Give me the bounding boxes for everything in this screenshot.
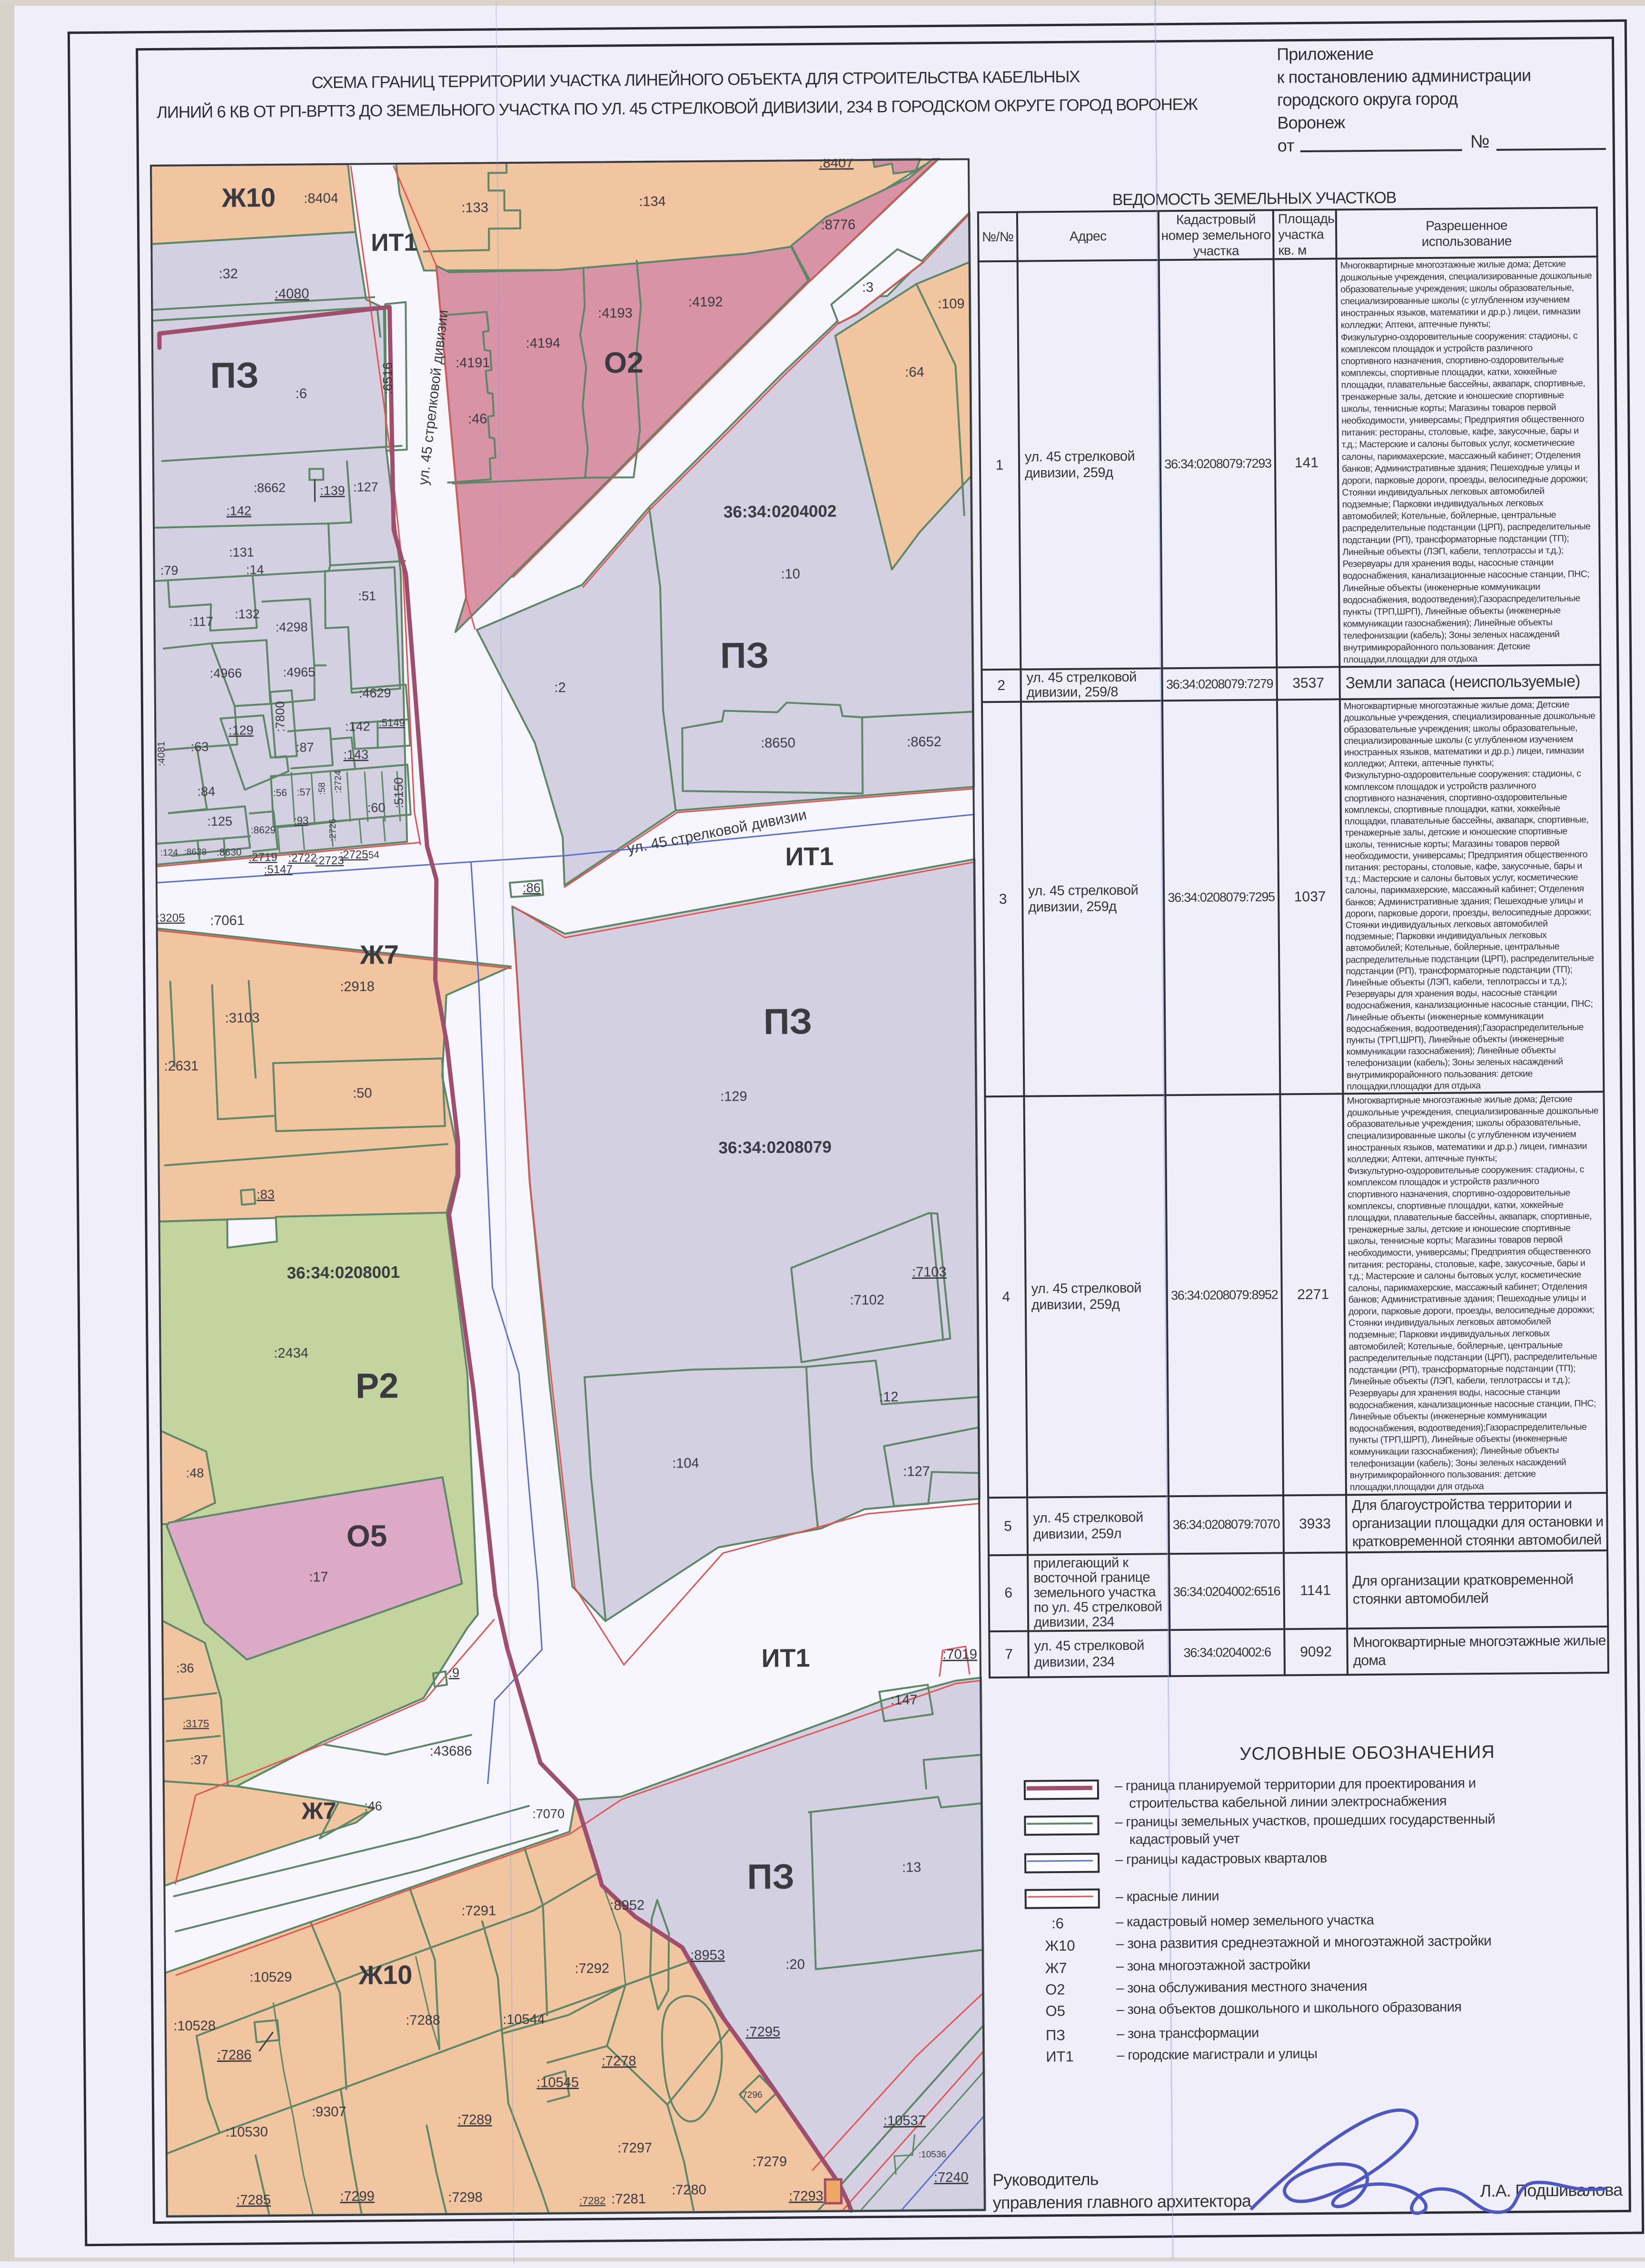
svg-text::117: :117 <box>189 614 213 629</box>
svg-text::2434: :2434 <box>274 1345 308 1361</box>
svg-text::57: :57 <box>297 787 311 798</box>
svg-text::10536: :10536 <box>919 2150 946 2160</box>
svg-text::8407: :8407 <box>819 158 854 171</box>
svg-text:36:34:0208001: 36:34:0208001 <box>287 1263 400 1282</box>
svg-text::4965: :4965 <box>283 665 315 680</box>
svg-text::7286: :7286 <box>217 2047 252 2063</box>
svg-text::109: :109 <box>938 296 965 312</box>
svg-text::6: :6 <box>296 386 307 401</box>
svg-text::46: :46 <box>468 411 487 426</box>
svg-text::3205: :3205 <box>156 912 185 925</box>
svg-text::79: :79 <box>160 563 178 578</box>
svg-text::7292: :7292 <box>575 1961 609 1977</box>
svg-text::10537: :10537 <box>883 2113 926 2129</box>
svg-text::125: :125 <box>207 814 232 828</box>
svg-text::7800: :7800 <box>273 701 287 732</box>
svg-text::8652: :8652 <box>907 734 941 750</box>
svg-text::2: :2 <box>554 680 565 695</box>
svg-text::9307: :9307 <box>312 2104 347 2120</box>
svg-text::8662: :8662 <box>253 481 286 495</box>
svg-text::10544: :10544 <box>503 2012 545 2028</box>
svg-text::4081: :4081 <box>156 741 167 767</box>
svg-text::5147: :5147 <box>264 863 293 876</box>
svg-text::7103: :7103 <box>912 1264 947 1280</box>
svg-text::142: :142 <box>345 719 370 733</box>
svg-text::58: :58 <box>317 782 327 795</box>
svg-text::8630: :8630 <box>217 847 242 858</box>
svg-text::8776: :8776 <box>821 217 856 233</box>
svg-text:Ж7: Ж7 <box>359 939 399 970</box>
svg-text::10530: :10530 <box>226 2124 268 2140</box>
svg-text::143: :143 <box>343 747 368 761</box>
svg-text:ИТ1: ИТ1 <box>371 229 418 257</box>
svg-text::7285: :7285 <box>236 2192 271 2208</box>
svg-text::147: :147 <box>891 1692 918 1707</box>
svg-text::84: :84 <box>197 784 215 799</box>
svg-text:О2: О2 <box>604 346 644 380</box>
svg-text::3175: :3175 <box>183 1717 209 1729</box>
svg-text::131: :131 <box>229 545 254 559</box>
svg-text::7281: :7281 <box>611 2191 646 2207</box>
svg-text::93: :93 <box>294 814 308 826</box>
svg-text::7288: :7288 <box>406 2012 440 2028</box>
svg-text::127: :127 <box>903 1464 930 1479</box>
svg-text::32: :32 <box>219 266 238 282</box>
svg-text:ИТ1: ИТ1 <box>762 1644 810 1673</box>
svg-text::8650: :8650 <box>761 735 795 751</box>
svg-text:ПЗ: ПЗ <box>747 1857 794 1897</box>
svg-text::48: :48 <box>186 1466 204 1480</box>
svg-text::13: :13 <box>902 1860 922 1875</box>
svg-text::7278: :7278 <box>602 2053 636 2069</box>
svg-text::7102: :7102 <box>850 1292 884 1308</box>
svg-text::8404: :8404 <box>304 191 338 207</box>
svg-text::50: :50 <box>353 1085 372 1101</box>
svg-text::4191: :4191 <box>456 355 490 371</box>
svg-text::10529: :10529 <box>249 1970 292 1985</box>
svg-text::4193: :4193 <box>598 306 633 321</box>
svg-text::8629: :8629 <box>251 825 276 836</box>
svg-text::46: :46 <box>364 1799 382 1813</box>
svg-text::37: :37 <box>190 1753 208 1767</box>
svg-text::10545: :10545 <box>536 2075 579 2091</box>
svg-text::3103: :3103 <box>225 1010 260 1026</box>
svg-text::6516: :6516 <box>380 362 395 394</box>
svg-text::4629: :4629 <box>359 686 391 700</box>
svg-text::10528: :10528 <box>173 2018 216 2034</box>
svg-text::5149: :5149 <box>379 717 405 729</box>
svg-text::104: :104 <box>672 1456 699 1471</box>
svg-text::3: :3 <box>862 280 873 295</box>
svg-text::4080: :4080 <box>275 286 309 302</box>
svg-text:ПЗ: ПЗ <box>210 355 259 396</box>
svg-text::7299: :7299 <box>340 2189 375 2204</box>
svg-text::127: :127 <box>353 480 378 494</box>
svg-text::8952: :8952 <box>610 1898 644 1913</box>
svg-text::7070: :7070 <box>532 1806 565 1821</box>
svg-text::129: :129 <box>720 1089 747 1104</box>
svg-text::87: :87 <box>296 740 314 754</box>
svg-text::2918: :2918 <box>340 979 375 995</box>
svg-text::4298: :4298 <box>276 620 308 634</box>
svg-text::60: :60 <box>367 800 386 815</box>
svg-text::4966: :4966 <box>210 666 242 681</box>
svg-text::129: :129 <box>228 723 254 737</box>
svg-text::64: :64 <box>905 365 924 380</box>
svg-text::51: :51 <box>358 589 376 603</box>
svg-text::12: :12 <box>879 1390 899 1405</box>
svg-text::7280: :7280 <box>672 2182 706 2198</box>
svg-text::83: :83 <box>257 1187 275 1202</box>
svg-text::2725: :2725 <box>339 848 368 861</box>
svg-text::8628: :8628 <box>184 847 207 857</box>
svg-text::133: :133 <box>461 200 488 215</box>
svg-text::7291: :7291 <box>461 1903 496 1919</box>
svg-text::17: :17 <box>309 1569 328 1585</box>
svg-text::7019: :7019 <box>942 1647 977 1662</box>
svg-text::2722: :2722 <box>288 851 317 864</box>
svg-text::63: :63 <box>191 740 209 754</box>
svg-text::7297: :7297 <box>617 2140 652 2156</box>
svg-text::86: :86 <box>523 881 541 895</box>
svg-text::36: :36 <box>176 1661 194 1675</box>
svg-text::8953: :8953 <box>690 1948 725 1963</box>
svg-text::54: :54 <box>366 849 380 860</box>
svg-text::139: :139 <box>320 483 345 498</box>
svg-text:ПЗ: ПЗ <box>720 635 769 676</box>
svg-text:ИТ1: ИТ1 <box>785 842 833 871</box>
svg-text::56: :56 <box>273 788 287 799</box>
svg-text::2631: :2631 <box>164 1058 198 1074</box>
svg-text::7279: :7279 <box>753 2154 787 2170</box>
svg-text::142: :142 <box>226 503 251 518</box>
svg-text::7295: :7295 <box>745 2024 780 2040</box>
svg-text:36:34:0208079: 36:34:0208079 <box>718 1138 832 1157</box>
svg-text::14: :14 <box>246 562 264 577</box>
svg-text::7293: :7293 <box>789 2189 823 2204</box>
svg-text::132: :132 <box>235 607 260 621</box>
svg-text::7289: :7289 <box>457 2112 492 2128</box>
svg-text:О5: О5 <box>347 1519 387 1553</box>
svg-text::9: :9 <box>449 1666 460 1680</box>
svg-text::2724: :2724 <box>333 770 343 793</box>
svg-text:ПЗ: ПЗ <box>763 1001 813 1042</box>
svg-text::7296: :7296 <box>740 2090 763 2100</box>
svg-text::124: :124 <box>160 848 178 858</box>
svg-text::7240: :7240 <box>934 2170 969 2186</box>
svg-text:36:34:0204002: 36:34:0204002 <box>723 502 837 522</box>
svg-text::4192: :4192 <box>688 295 723 310</box>
svg-text::134: :134 <box>639 194 666 209</box>
svg-text::7061: :7061 <box>210 913 245 929</box>
svg-text::4194: :4194 <box>526 335 561 351</box>
svg-text:Ж10: Ж10 <box>221 182 276 213</box>
svg-text::7298: :7298 <box>448 2190 483 2206</box>
svg-text:Ж10: Ж10 <box>358 1960 412 1990</box>
svg-text::10: :10 <box>781 566 801 582</box>
svg-text:Ж7: Ж7 <box>301 1797 336 1824</box>
svg-text::7282: :7282 <box>579 2195 605 2207</box>
svg-text::43686: :43686 <box>430 1744 472 1759</box>
svg-text::2719: :2719 <box>248 851 277 864</box>
svg-text:Р2: Р2 <box>356 1366 399 1406</box>
svg-text::5150: :5150 <box>391 777 406 808</box>
svg-text::20: :20 <box>785 1957 805 1972</box>
svg-text::2726: :2726 <box>328 818 338 841</box>
